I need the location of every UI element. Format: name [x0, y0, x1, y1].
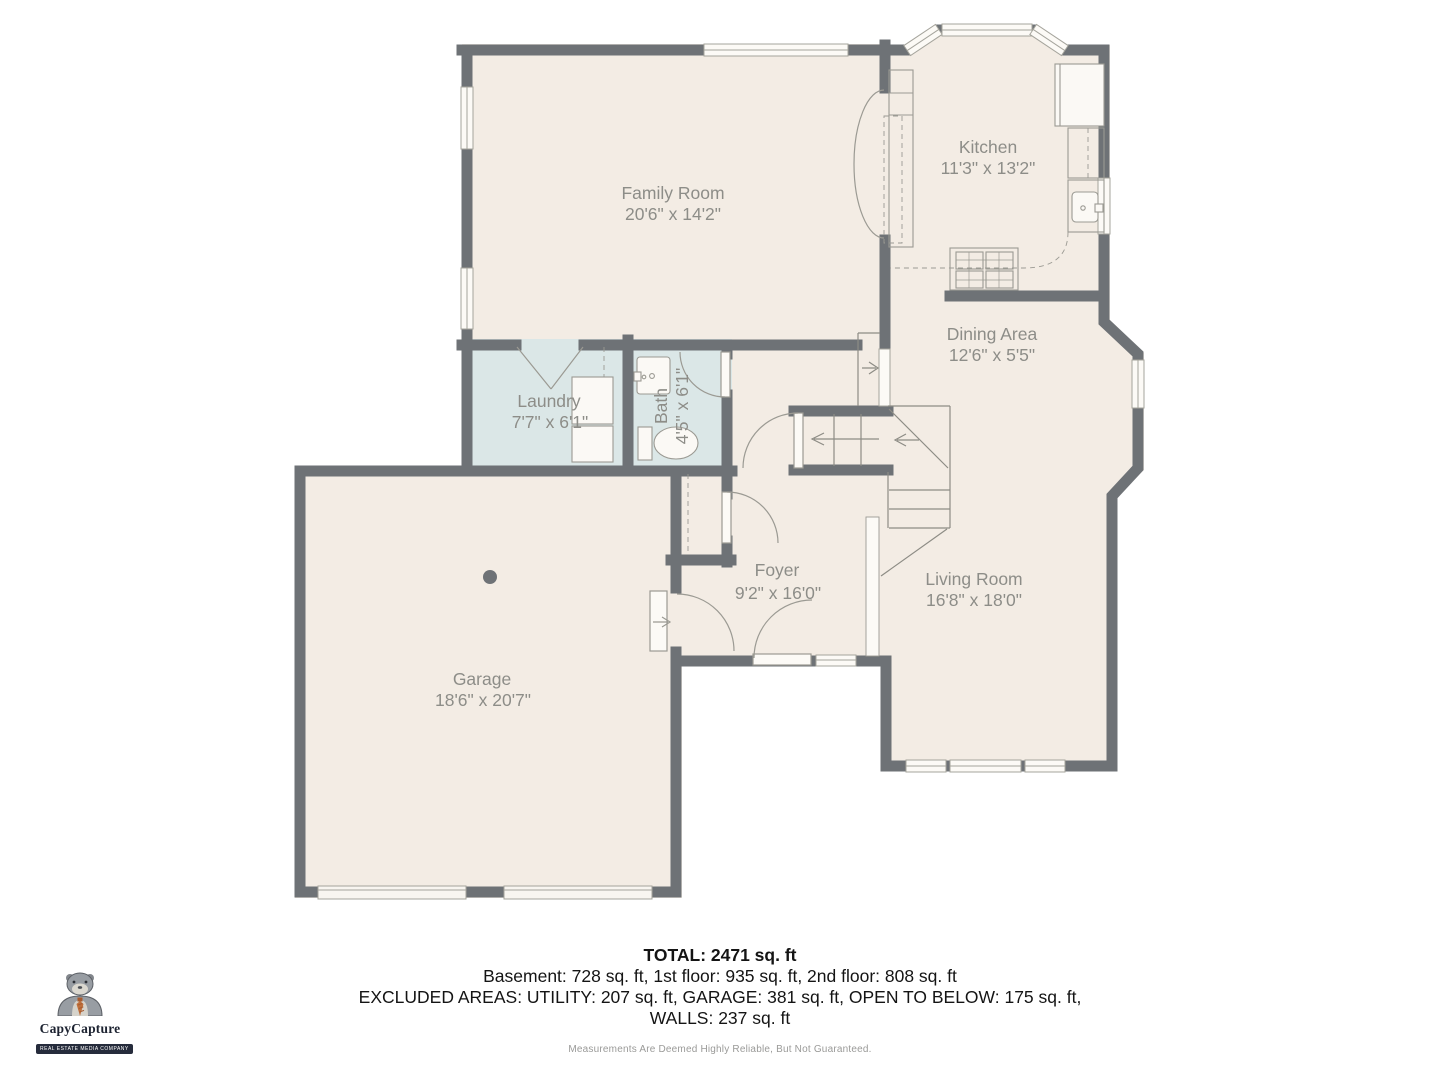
foyer-front-window	[816, 655, 856, 666]
garage-door-2	[504, 886, 652, 899]
foyer-pony-wall	[866, 517, 879, 656]
family-left-window-2	[461, 268, 473, 329]
garage-dims: 18'6" x 20'7"	[435, 690, 531, 710]
kitchen-bay-window-top	[942, 24, 1032, 36]
family-top-window	[704, 44, 848, 56]
excluded-areas: EXCLUDED AREAS: UTILITY: 207 sq. ft, GAR…	[0, 987, 1440, 1008]
floor-plan: Family Room 20'6" x 14'2" Kitchen 11'3" …	[0, 0, 1440, 940]
company-logo: CapyCapture REAL ESTATE MEDIA COMPANY	[36, 970, 124, 1055]
floor-areas: Basement: 728 sq. ft, 1st floor: 935 sq.…	[0, 966, 1440, 987]
company-name: CapyCapture	[36, 1021, 124, 1037]
kitchen-dims: 11'3" x 13'2"	[941, 158, 1036, 178]
garage-door-1	[318, 886, 466, 899]
corridor-opening	[879, 349, 890, 406]
dining-bay-window	[1132, 360, 1144, 408]
floor-plan-page: { "plan": { "title": "First floor plan",…	[0, 0, 1440, 1080]
family-left-window-1	[461, 87, 473, 149]
living-window-1	[906, 760, 946, 772]
living-window-3	[1025, 760, 1065, 772]
disclaimer-text: Measurements Are Deemed Highly Reliable,…	[0, 1044, 1440, 1055]
laundry-label: Laundry	[517, 391, 580, 411]
living-room-label: Living Room	[925, 569, 1022, 589]
garage-post	[483, 570, 497, 584]
total-area: TOTAL: 2471 sq. ft	[0, 945, 1440, 966]
dining-area-dims: 12'6" x 5'5"	[949, 345, 1035, 365]
living-room-dims: 16'8" x 18'0"	[926, 590, 1022, 610]
area-summary: TOTAL: 2471 sq. ft Basement: 728 sq. ft,…	[0, 945, 1440, 1029]
bath-dims: 4'5" x 6'1"	[672, 368, 692, 445]
laundry-dims: 7'7" x 6'1"	[512, 412, 589, 432]
dining-area-label: Dining Area	[947, 324, 1038, 344]
family-room-dims: 20'6" x 14'2"	[625, 204, 721, 224]
bath-label: Bath	[651, 388, 671, 424]
company-tagline: REAL ESTATE MEDIA COMPANY	[36, 1044, 133, 1054]
refrigerator	[1055, 64, 1104, 126]
garage-label: Garage	[453, 669, 511, 689]
family-room-label: Family Room	[621, 183, 724, 203]
foyer-dims: 9'2" x 16'0"	[735, 583, 821, 603]
walls-area: WALLS: 237 sq. ft	[0, 1008, 1440, 1029]
capybara-mascot-icon	[50, 970, 110, 1016]
living-window-2	[950, 760, 1021, 772]
foyer-label: Foyer	[755, 560, 800, 580]
kitchen-label: Kitchen	[959, 137, 1017, 157]
